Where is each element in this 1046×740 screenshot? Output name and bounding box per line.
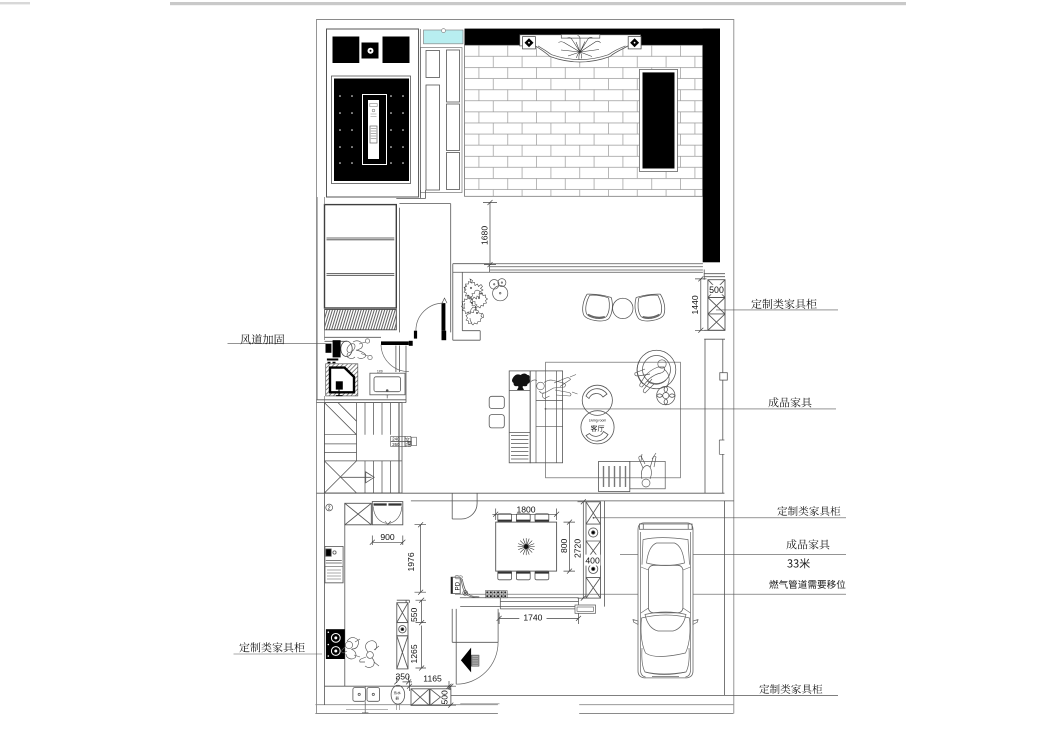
svg-text:800: 800 bbox=[559, 538, 569, 553]
svg-text:Living room: Living room bbox=[589, 419, 607, 423]
svg-text:1740: 1740 bbox=[523, 613, 542, 623]
svg-text:1165: 1165 bbox=[423, 674, 442, 684]
svg-text:500: 500 bbox=[709, 285, 724, 295]
svg-text:1265: 1265 bbox=[409, 644, 419, 663]
svg-text:1800: 1800 bbox=[516, 504, 535, 514]
svg-text:500: 500 bbox=[440, 690, 450, 705]
svg-text:260: 260 bbox=[392, 442, 400, 447]
svg-text:900: 900 bbox=[380, 532, 395, 542]
svg-text:1X0: 1X0 bbox=[377, 370, 383, 374]
svg-text:PD: PD bbox=[454, 581, 461, 590]
svg-text:550: 550 bbox=[409, 607, 419, 622]
svg-text:2720: 2720 bbox=[573, 539, 583, 558]
svg-text:1440: 1440 bbox=[690, 295, 700, 314]
svg-text:2: 2 bbox=[328, 506, 331, 512]
svg-text:1680: 1680 bbox=[480, 226, 490, 245]
svg-text:400: 400 bbox=[585, 556, 600, 566]
svg-text:350: 350 bbox=[396, 672, 411, 682]
svg-text:1976: 1976 bbox=[406, 552, 416, 571]
